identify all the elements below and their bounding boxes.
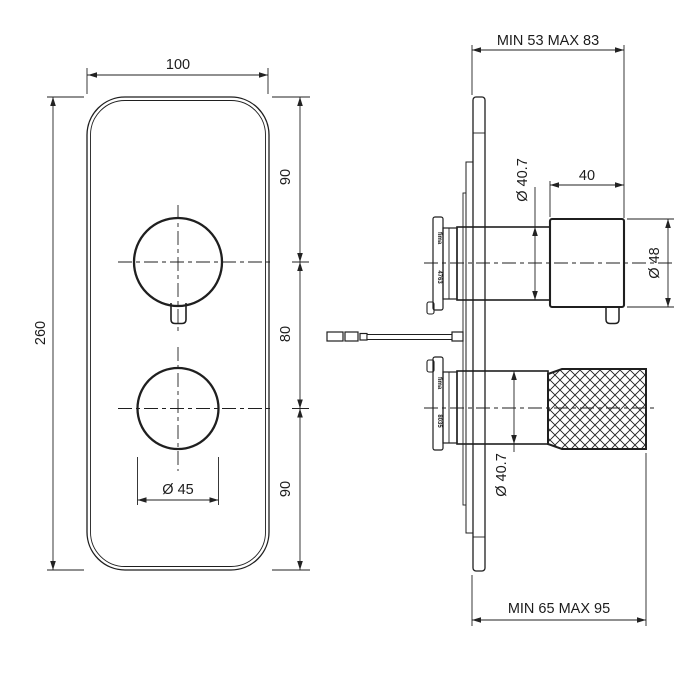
front-view xyxy=(87,97,273,570)
concealed-housing-outer xyxy=(466,162,473,533)
middle-spacing-label: 80 xyxy=(278,326,294,342)
lower-cartridge xyxy=(427,357,457,450)
upper-depth-label: MIN 53 MAX 83 xyxy=(497,33,599,49)
outlet-pipe xyxy=(327,332,463,341)
lower-cartridge-code-label: 8035 xyxy=(436,414,442,428)
handle-diameter-label: Ø 48 xyxy=(647,247,663,278)
technical-drawing-canvas: 100 260 90 80 90 Ø 45 MIN 53 MAX 83 40 Ø… xyxy=(0,0,700,700)
bottom-spacing-label: 90 xyxy=(278,481,294,497)
handle-length-label: 40 xyxy=(579,168,595,184)
top-spacing-label: 90 xyxy=(278,169,294,185)
plate-height-label: 260 xyxy=(33,321,49,345)
upper-handle-nub xyxy=(606,307,619,324)
knob-diameter-label: Ø 45 xyxy=(162,482,193,498)
upper-valve-body xyxy=(457,227,550,300)
front-centerlines xyxy=(118,205,273,471)
side-dimensions xyxy=(472,45,674,626)
lower-body-diameter-label: Ø 40.7 xyxy=(494,453,510,497)
wall-plate-side xyxy=(473,97,485,571)
knurled-knob xyxy=(548,369,646,449)
plate-width-label: 100 xyxy=(166,57,190,73)
upper-body-diameter-label: Ø 40.7 xyxy=(515,158,531,202)
lower-depth-label: MIN 65 MAX 95 xyxy=(508,601,610,617)
upper-cartridge-brand-label: fima xyxy=(436,232,442,245)
dimension-labels: 100 260 90 80 90 Ø 45 MIN 53 MAX 83 40 Ø… xyxy=(33,33,663,617)
drawing-svg: 100 260 90 80 90 Ø 45 MIN 53 MAX 83 40 Ø… xyxy=(0,0,700,700)
lower-cartridge-brand-label: fima xyxy=(436,377,442,390)
lower-valve-body xyxy=(457,371,548,444)
upper-cartridge-code-label: 4763 xyxy=(436,270,442,284)
plate-front-outer xyxy=(87,97,269,570)
